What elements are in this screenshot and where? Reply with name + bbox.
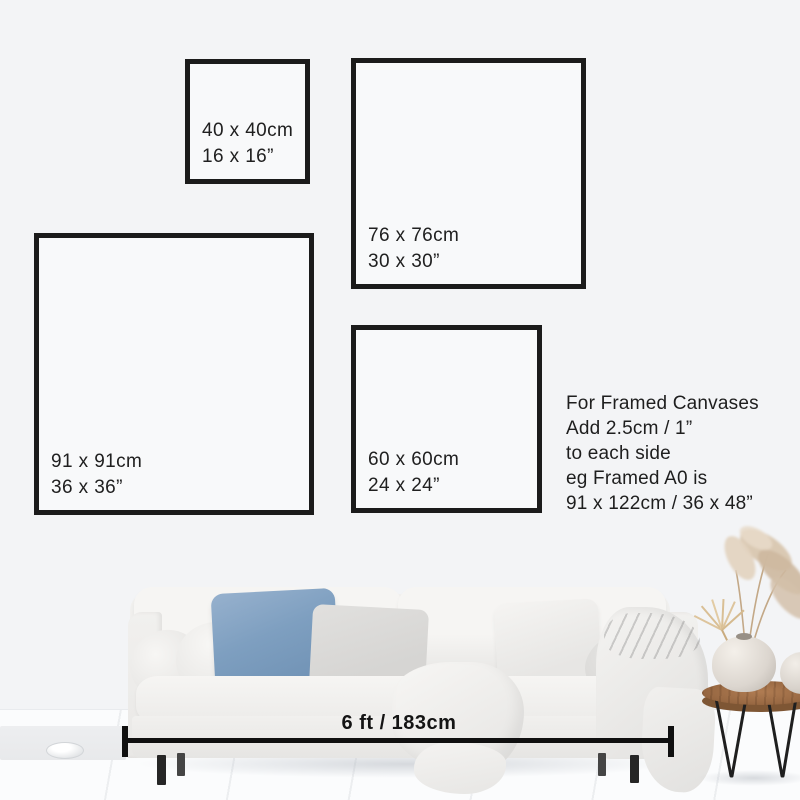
frame-size-inch: 30 x 30” bbox=[368, 249, 459, 275]
frame-size-cm: 76 x 76cm bbox=[368, 223, 459, 249]
frame-size-cm: 40 x 40cm bbox=[202, 118, 293, 144]
sofa-leg-front-left bbox=[157, 755, 166, 785]
decor-bowl bbox=[46, 742, 84, 759]
size-frame-60x60: 60 x 60cm 24 x 24” bbox=[351, 325, 542, 513]
size-frame-76x76: 76 x 76cm 30 x 30” bbox=[351, 58, 586, 289]
note-line: to each side bbox=[566, 441, 796, 466]
frame-size-inch: 36 x 36” bbox=[51, 475, 142, 501]
measurement-line bbox=[124, 738, 674, 743]
frame-label: 76 x 76cm 30 x 30” bbox=[368, 223, 459, 275]
frame-label: 91 x 91cm 36 x 36” bbox=[51, 449, 142, 501]
note-line: For Framed Canvases bbox=[566, 391, 796, 416]
sofa-leg-back-left bbox=[177, 753, 185, 776]
throw-blanket-seat-tail bbox=[414, 742, 506, 794]
frame-size-inch: 24 x 24” bbox=[368, 473, 459, 499]
size-frame-91x91: 91 x 91cm 36 x 36” bbox=[34, 233, 314, 515]
sofa-leg-back-right bbox=[598, 753, 606, 776]
size-frame-40x40: 40 x 40cm 16 x 16” bbox=[185, 59, 310, 184]
frame-size-inch: 16 x 16” bbox=[202, 144, 293, 170]
canvas-size-guide: 40 x 40cm 16 x 16” 76 x 76cm 30 x 30” 91… bbox=[0, 0, 800, 800]
framed-canvas-note: For Framed Canvases Add 2.5cm / 1” to ea… bbox=[566, 391, 796, 516]
sofa-leg-front-right bbox=[630, 755, 639, 783]
note-line: eg Framed A0 is bbox=[566, 466, 796, 491]
frame-label: 60 x 60cm 24 x 24” bbox=[368, 447, 459, 499]
table-hairpin-legs bbox=[700, 696, 800, 786]
measurement-cap-right bbox=[668, 726, 674, 757]
frame-label: 40 x 40cm 16 x 16” bbox=[202, 118, 293, 170]
measurement-label: 6 ft / 183cm bbox=[124, 712, 674, 735]
note-line: Add 2.5cm / 1” bbox=[566, 416, 796, 441]
measurement-cap-left bbox=[122, 726, 128, 757]
vase-large bbox=[712, 636, 776, 692]
vase-mouth bbox=[736, 633, 752, 640]
frame-size-cm: 91 x 91cm bbox=[51, 449, 142, 475]
frame-size-cm: 60 x 60cm bbox=[368, 447, 459, 473]
